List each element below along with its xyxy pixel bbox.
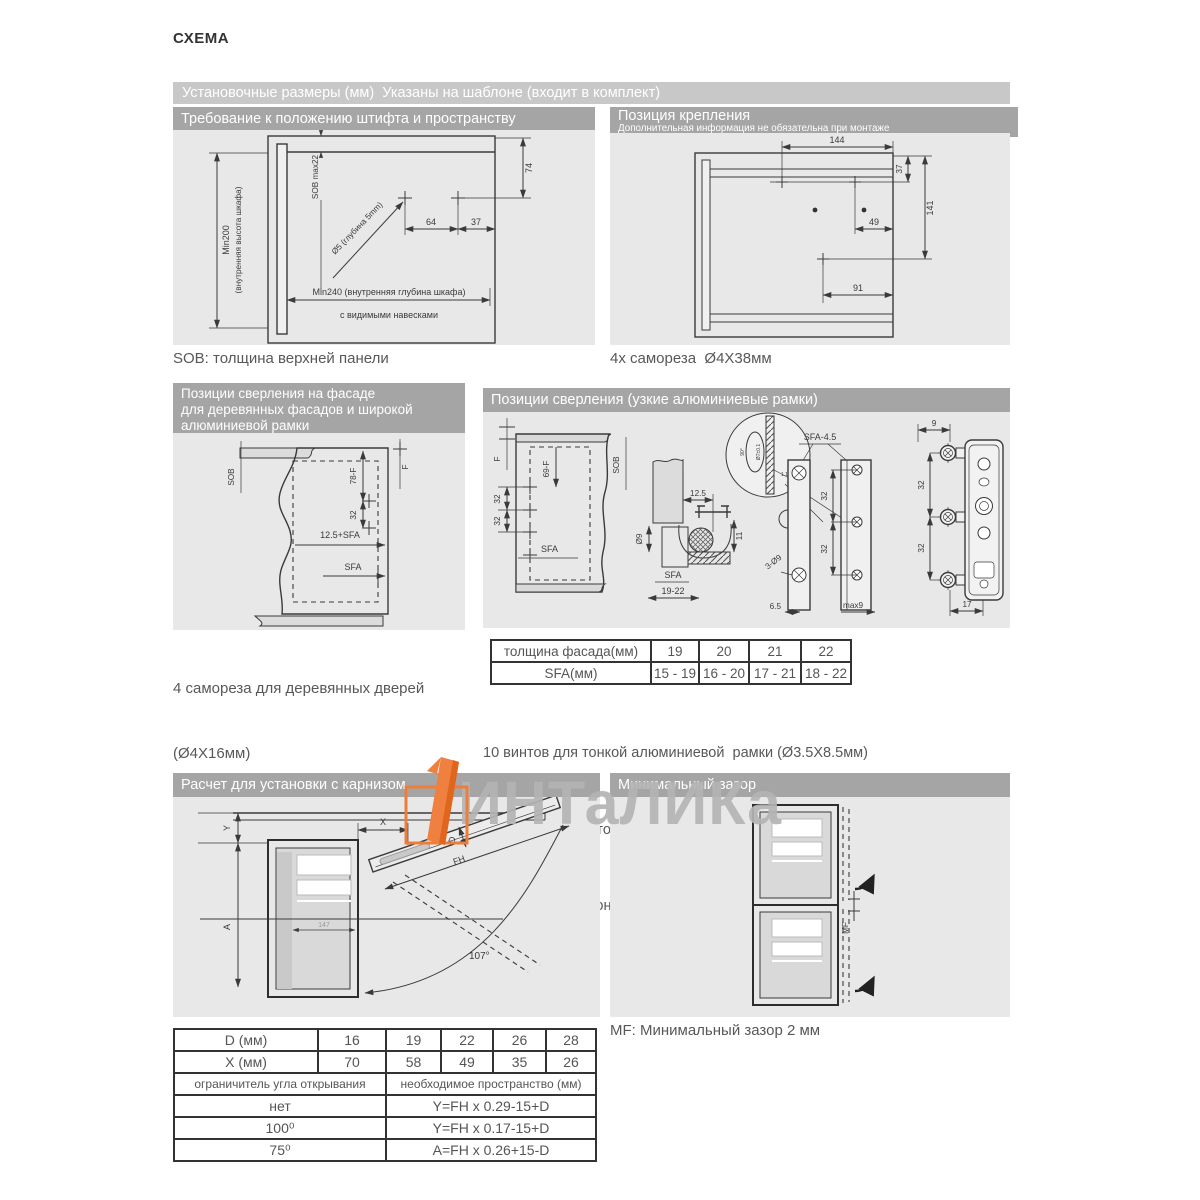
mount-section-title: Позиция крепления xyxy=(618,109,1010,124)
top-banner: Установочные размеры (мм) Указаны на шаб… xyxy=(173,82,1010,104)
dim-label: 32 xyxy=(493,516,502,526)
screw-hole xyxy=(813,208,818,213)
table-cell: ограничитель угла открывания xyxy=(174,1073,386,1095)
dim-label: Min200 xyxy=(221,225,231,255)
dim-label: SFA xyxy=(541,544,558,554)
dim-label: 17 xyxy=(962,600,972,609)
dim-label: SFA-4.5 xyxy=(804,432,837,442)
table-cell: 70 xyxy=(318,1051,386,1073)
table-cell: необходимое пространство (мм) xyxy=(386,1073,596,1095)
table-cell: 16 - 20 xyxy=(699,662,749,684)
open-direction-arrow xyxy=(855,979,873,991)
alu-drilling-drawing: F 69-F SOB 32 32 SFA 12.5 xyxy=(483,412,1010,628)
dim-label: 64 xyxy=(426,217,436,227)
wood-section-header: Позиции сверления на фасаде для деревянн… xyxy=(173,383,465,433)
table-cell: нет xyxy=(174,1095,386,1117)
dim-label: 11 xyxy=(735,531,744,540)
table-row: 100⁰ Y=FH x 0.17-15+D xyxy=(174,1117,596,1139)
dim-label: 49 xyxy=(869,217,879,227)
wood-header-line: алюминиевой рамки xyxy=(181,418,457,434)
table-cell: 20 xyxy=(699,640,749,662)
dim-label: 12.5+SFA xyxy=(320,530,360,540)
dim-label: 32 xyxy=(349,510,358,520)
table-row: X (мм) 70 58 49 35 26 xyxy=(174,1051,596,1073)
table-cell: 18 - 22 xyxy=(801,662,851,684)
mount-section-panel: 144 37 141 49 91 xyxy=(610,133,1010,345)
dim-label: 6.5 xyxy=(770,602,782,611)
wood-drilling-drawing: SOB F 78-F 32 12.5+SFA SFA xyxy=(173,433,465,630)
dim-label: 69-F xyxy=(542,461,551,478)
table-cell: 75⁰ xyxy=(174,1139,386,1161)
alu-section-panel: F 69-F SOB 32 32 SFA 12.5 xyxy=(483,412,1010,628)
table-row: D (мм) 16 19 22 26 28 xyxy=(174,1029,596,1051)
note-line: 10 винтов для тонкой алюминиевой рамки (… xyxy=(483,741,1023,767)
dim-label: Min240 (внутренняя глубина шкафа) xyxy=(313,287,466,297)
dim-label: 90° xyxy=(740,448,746,456)
schema-page: СХЕМА Установочные размеры (мм) Указаны … xyxy=(0,0,1200,1200)
dim-label: max9 xyxy=(843,601,863,610)
page-title: СХЕМА xyxy=(173,30,229,47)
dim-label: Ø7±0.1 xyxy=(756,444,762,461)
table-cell: 21 xyxy=(749,640,801,662)
table-cell: Y=FH x 0.17-15+D xyxy=(386,1117,596,1139)
dim-label: 91 xyxy=(853,283,863,293)
table-cell: D (мм) xyxy=(174,1029,318,1051)
dim-label: SOB max22 xyxy=(311,154,320,199)
dim-label: SOB xyxy=(612,456,621,474)
gap-section-caption: MF: Минимальный зазор 2 мм xyxy=(610,1022,820,1039)
dim-label: 144 xyxy=(829,135,844,145)
dim-label: F xyxy=(493,456,502,461)
sfa-table: толщина фасада(мм) 19 20 21 22 SFA(мм) 1… xyxy=(490,639,852,685)
dim-label: 74 xyxy=(524,163,534,173)
open-direction-arrow xyxy=(855,877,873,889)
wood-header-line: Позиции сверления на фасаде xyxy=(181,386,457,402)
dim-label: Ø9 xyxy=(635,533,644,544)
table-row: 75⁰ A=FH x 0.26+15-D xyxy=(174,1139,596,1161)
table-cell: 19 xyxy=(651,640,699,662)
table-cell: 22 xyxy=(801,640,851,662)
dim-label: 19-22 xyxy=(661,586,684,596)
dim-label: 78-F xyxy=(349,468,358,485)
mount-position-drawing: 144 37 141 49 91 xyxy=(610,133,1010,345)
table-row: ограничитель угла открывания необходимое… xyxy=(174,1073,596,1095)
dim-label: 32 xyxy=(917,480,926,490)
dim-label: 32 xyxy=(820,491,829,501)
mount-section-caption: 4x самореза Ø4X38мм xyxy=(610,350,772,367)
dim-label: X xyxy=(380,817,386,827)
dim-label: Y xyxy=(222,825,232,831)
dim-label: 37 xyxy=(895,164,904,174)
pin-position-drawing: Min200 (внутренняя высота шкафа) SOB max… xyxy=(173,130,595,345)
pin-section-panel: Min200 (внутренняя высота шкафа) SOB max… xyxy=(173,130,595,345)
table-cell: толщина фасада(мм) xyxy=(491,640,651,662)
table-cell: 100⁰ xyxy=(174,1117,386,1139)
dim-label: 37 xyxy=(471,217,481,227)
table-cell: 35 xyxy=(493,1051,546,1073)
table-cell: 17 - 21 xyxy=(749,662,801,684)
alu-section-header: Позиции сверления (узкие алюминиевые рам… xyxy=(483,388,1010,412)
dim-label: 32 xyxy=(820,544,829,554)
dim-label: MF xyxy=(841,922,850,934)
dim-label: FH xyxy=(452,853,467,866)
dim-label: 3-Ø9 xyxy=(764,553,784,572)
dim-label: 12.5 xyxy=(690,489,706,498)
dim-label: (внутренняя высота шкафа) xyxy=(234,186,243,293)
watermark-text: ИНТаЛИКа xyxy=(458,768,782,838)
table-cell: 19 xyxy=(386,1029,441,1051)
dim-label: с видимыми навесками xyxy=(340,310,438,320)
dim-label: 147 xyxy=(318,922,330,929)
table-cell: 58 xyxy=(386,1051,441,1073)
table-cell: 15 - 19 xyxy=(651,662,699,684)
dim-label: A xyxy=(222,924,232,930)
table-cell: A=FH x 0.26+15-D xyxy=(386,1139,596,1161)
wood-header-line: для деревянных фасадов и широкой xyxy=(181,402,457,418)
calc-table: D (мм) 16 19 22 26 28 X (мм) 70 58 49 35… xyxy=(173,1028,597,1162)
dim-label: SOB xyxy=(227,468,236,486)
table-row: SFA(мм) 15 - 19 16 - 20 17 - 21 18 - 22 xyxy=(491,662,851,684)
table-cell: 16 xyxy=(318,1029,386,1051)
table-cell: 26 xyxy=(546,1051,596,1073)
table-cell: SFA(мм) xyxy=(491,662,651,684)
dim-label: 32 xyxy=(493,494,502,504)
dim-label: SFA xyxy=(664,570,681,580)
dim-label: 9 xyxy=(932,419,937,428)
screw-hole xyxy=(862,208,867,213)
table-cell: 49 xyxy=(441,1051,493,1073)
wood-section-panel: SOB F 78-F 32 12.5+SFA SFA xyxy=(173,433,465,630)
dim-label: 32 xyxy=(917,543,926,553)
caption-line: 4 самореза для деревянных дверей xyxy=(173,678,473,700)
table-row: нет Y=FH x 0.29-15+D xyxy=(174,1095,596,1117)
pin-section-header: Требование к положению штифта и простран… xyxy=(173,107,595,130)
table-row: толщина фасада(мм) 19 20 21 22 xyxy=(491,640,851,662)
table-cell: Y=FH x 0.29-15+D xyxy=(386,1095,596,1117)
dim-label: 141 xyxy=(925,200,935,215)
table-cell: 22 xyxy=(441,1029,493,1051)
dim-label: 107° xyxy=(469,951,490,962)
pin-section-caption: SOB: толщина верхней панели xyxy=(173,350,389,367)
dim-label: Ø5 (глубина 5mm) xyxy=(330,200,385,256)
dim-label: SFA xyxy=(344,562,361,572)
table-cell: 26 xyxy=(493,1029,546,1051)
table-cell: X (мм) xyxy=(174,1051,318,1073)
table-cell: 28 xyxy=(546,1029,596,1051)
dim-label: F xyxy=(401,464,410,469)
brand-logo xyxy=(403,755,473,847)
